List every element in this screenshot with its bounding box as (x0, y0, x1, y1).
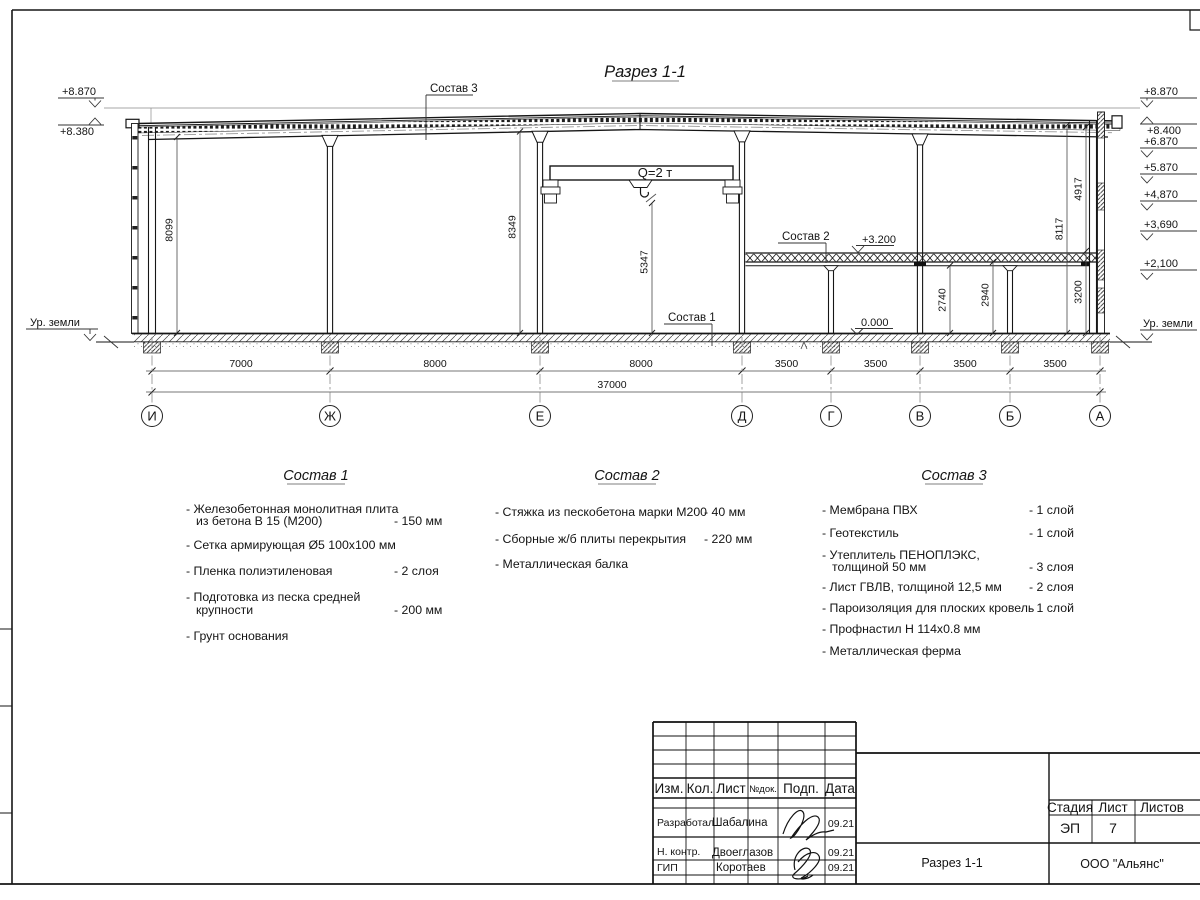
tb-sheet-value: 7 (1109, 820, 1117, 836)
list-value: - 2 слоя (1029, 580, 1074, 594)
level-zero: 0.000 (861, 317, 889, 329)
list-item: - Стяжка из пескобетона марки М200 (495, 505, 707, 519)
callout-sostav3: Состав 3 (430, 83, 478, 95)
tb-sheets-label: Листов (1140, 800, 1184, 815)
elevation-marks-middle: +3.200 0.000 (851, 234, 896, 335)
list-value: - 200 мм (394, 603, 442, 617)
crane-beam: Q=2 т (541, 165, 742, 203)
list-value: - 3 слоя (1029, 560, 1074, 574)
tb-name-shabalina: Шабалина (712, 817, 768, 829)
wall-panel (1098, 288, 1105, 313)
list-value: - 1 слой (1029, 503, 1074, 517)
elevation-marks-right: +8.870 +8.400 +6.870 +5.870 +4,870 +3,69… (1140, 86, 1197, 340)
level-right-5870: +5.870 (1144, 162, 1178, 174)
axis-label-I: И (147, 409, 156, 424)
wall-panel (1098, 112, 1105, 138)
tb-stage-label: Стадия (1047, 800, 1093, 815)
axis-label-G: Г (827, 409, 834, 424)
list-item: - Подготовка из песка средней (186, 590, 360, 604)
signature-2 (793, 848, 820, 879)
list-value: - 1 слой (1029, 526, 1074, 540)
crane-bracket (725, 180, 740, 187)
wall-panel (1098, 183, 1105, 210)
list-item: - Пароизоляция для плоских кровель (822, 601, 1034, 615)
tb-date-2: 09.21 (828, 847, 854, 859)
horizontal-dimensions: 7000 8000 8000 3500 3500 3500 3500 37000 (146, 358, 1106, 396)
tb-col-data: Дата (825, 781, 855, 796)
ground-floor (96, 334, 1152, 354)
tb-col-izm: Изм. (655, 781, 684, 796)
roof-right-endplate (1112, 116, 1122, 128)
columns (322, 131, 928, 334)
dim-5347: 5347 (639, 250, 651, 274)
level-right-8870: +8.870 (1144, 86, 1178, 98)
dim-3500a: 3500 (775, 358, 799, 370)
tb-role-nkontr: Н. контр. (657, 846, 700, 858)
dim-7000: 7000 (229, 358, 253, 370)
list-item: из бетона В 15 (М200) (196, 514, 322, 528)
list-item: - Мембрана ПВХ (822, 503, 918, 517)
list-item: толщиной 50 мм (832, 560, 926, 574)
dim-3200: 3200 (1073, 280, 1085, 304)
dim-2740: 2740 (937, 288, 949, 312)
signature-1 (783, 810, 834, 840)
level-mezzanine: +3.200 (862, 234, 896, 246)
dim-3500d: 3500 (1043, 358, 1067, 370)
composition-list-2: Состав 2 - Стяжка из пескобетона марки М… (495, 468, 752, 571)
tb-col-kol: Кол. (687, 781, 714, 796)
section-title: Разрез 1-1 (604, 63, 686, 81)
list-item: - Сборные ж/б плиты перекрытия (495, 532, 686, 546)
frame-corner-box (1190, 10, 1200, 30)
axis-label-V: В (916, 409, 925, 424)
list-value: - 150 мм (394, 514, 442, 528)
composition-list-1: Состав 1 - Железобетонная монолитная пли… (186, 468, 442, 643)
title-block: Изм. Кол. Лист №док. Подп. Дата Разработ… (653, 722, 1200, 884)
level-left-8380: +8.380 (60, 126, 94, 138)
left-wall (132, 124, 156, 334)
list-item: - Сетка армирующая Ø5 100х100 мм (186, 538, 396, 552)
sostav3-title: Состав 3 (921, 468, 986, 484)
dim-3500c: 3500 (953, 358, 977, 370)
list-item: - Металлическая балка (495, 557, 628, 571)
sostav1-title: Состав 1 (283, 468, 348, 484)
list-item: - Пленка полиэтиленовая (186, 564, 332, 578)
building-section: Q=2 т (26, 83, 1197, 427)
sostav2-title: Состав 2 (594, 468, 659, 484)
dim-8099: 8099 (164, 218, 176, 242)
drawing-sheet: Разрез 1-1 (0, 0, 1200, 900)
level-right-4870: +4,870 (1144, 189, 1178, 201)
crane-capacity-label: Q=2 т (638, 165, 673, 180)
list-value: - 1 слой (1029, 601, 1074, 615)
dim-3500b: 3500 (864, 358, 888, 370)
dim-8349: 8349 (507, 215, 519, 239)
dim-8000a: 8000 (423, 358, 447, 370)
tb-name-korotaev: Коротаев (716, 862, 766, 874)
dim-8117: 8117 (1054, 218, 1066, 241)
list-item: крупности (196, 603, 253, 617)
crane-bracket (545, 194, 557, 203)
sand-layer (134, 342, 1110, 348)
list-value: - 40 мм (704, 505, 746, 519)
roof-truss (126, 114, 1122, 140)
tb-date-1: 09.21 (828, 818, 854, 830)
crane-bracket (723, 187, 742, 194)
list-item: - Лист ГВЛВ, толщиной 12,5 мм (822, 580, 1002, 594)
steel-beam-mark (1081, 262, 1090, 266)
level-right-2100: +2,100 (1144, 258, 1178, 270)
axis-label-A: А (1096, 409, 1105, 424)
tb-doc-name: Разрез 1-1 (921, 856, 982, 870)
axis-label-Zh: Ж (324, 409, 336, 424)
dim-4917: 4917 (1073, 177, 1085, 201)
axis-label-B: Б (1006, 409, 1015, 424)
vertical-dimensions: 8099 8349 5347 2740 2940 4917 3200 8117 (164, 122, 1090, 336)
tb-role-razrabotal: Разработал (657, 817, 714, 829)
list-item: - Профнастил Н 114х0.8 мм (822, 622, 980, 636)
list-value: - 2 слоя (394, 564, 439, 578)
tb-name-dvoeglazov: Двоеглазов (712, 847, 773, 859)
level-right-3690: +3,690 (1144, 219, 1178, 231)
mezzanine-slab (746, 253, 1098, 266)
dim-2940: 2940 (980, 283, 992, 307)
crane-hook (641, 188, 649, 198)
wall-panel (1098, 250, 1105, 280)
list-item: - Грунт основания (186, 629, 288, 643)
list-item: - Металлическая ферма (822, 644, 961, 658)
tb-role-gip: ГИП (657, 862, 678, 874)
level-left-8870: +8.870 (62, 86, 96, 98)
tb-col-list: Лист (716, 781, 745, 796)
steel-beam-mark (914, 262, 926, 266)
axis-label-D: Д (738, 409, 747, 424)
crane-trolley (629, 180, 652, 188)
level-right-6870: +6.870 (1144, 136, 1178, 148)
composition-list-3: Состав 3 - Мембрана ПВХ - 1 слой - Геоте… (822, 468, 1074, 658)
elevation-marks-left: +8.870 +8.380 Ур. земли (26, 86, 104, 341)
tb-sheet-label: Лист (1098, 800, 1127, 815)
ground-level-left: Ур. земли (30, 317, 80, 329)
tb-col-ndok: №док. (749, 784, 777, 795)
callout-sostav2: Состав 2 (782, 231, 830, 243)
ground-level-right: Ур. земли (1143, 318, 1193, 330)
tb-organization: ООО "Альянс" (1080, 857, 1164, 871)
dim-8000b: 8000 (629, 358, 653, 370)
crane-bracket (541, 187, 560, 194)
dim-37000: 37000 (597, 379, 626, 391)
truss-bottom-chord (148, 130, 1108, 140)
callout-sostav1: Состав 1 (668, 312, 716, 324)
tb-col-podp: Подп. (783, 781, 819, 796)
tb-stage-value: ЭП (1060, 820, 1080, 836)
right-wall (1090, 112, 1105, 334)
crane-bracket (543, 180, 558, 187)
list-value: - 220 мм (704, 532, 752, 546)
list-item: - Геотекстиль (822, 526, 899, 540)
crane-bracket (727, 194, 739, 203)
tb-date-3: 09.21 (828, 862, 854, 874)
axis-label-E: Е (536, 409, 545, 424)
